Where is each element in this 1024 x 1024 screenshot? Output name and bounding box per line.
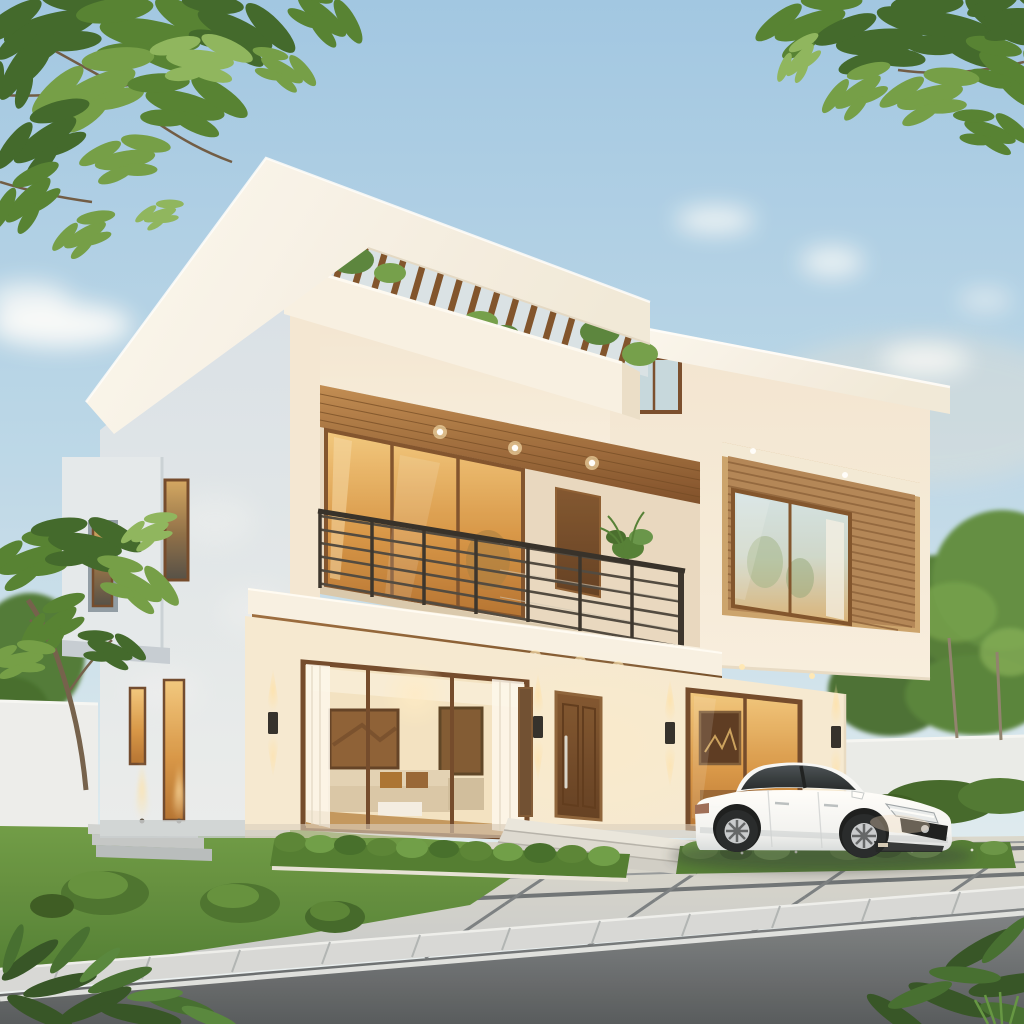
- scene-stage: [0, 0, 1024, 1024]
- scene-svg: [0, 0, 1024, 1024]
- warm-wash-overlay: [0, 0, 1024, 1024]
